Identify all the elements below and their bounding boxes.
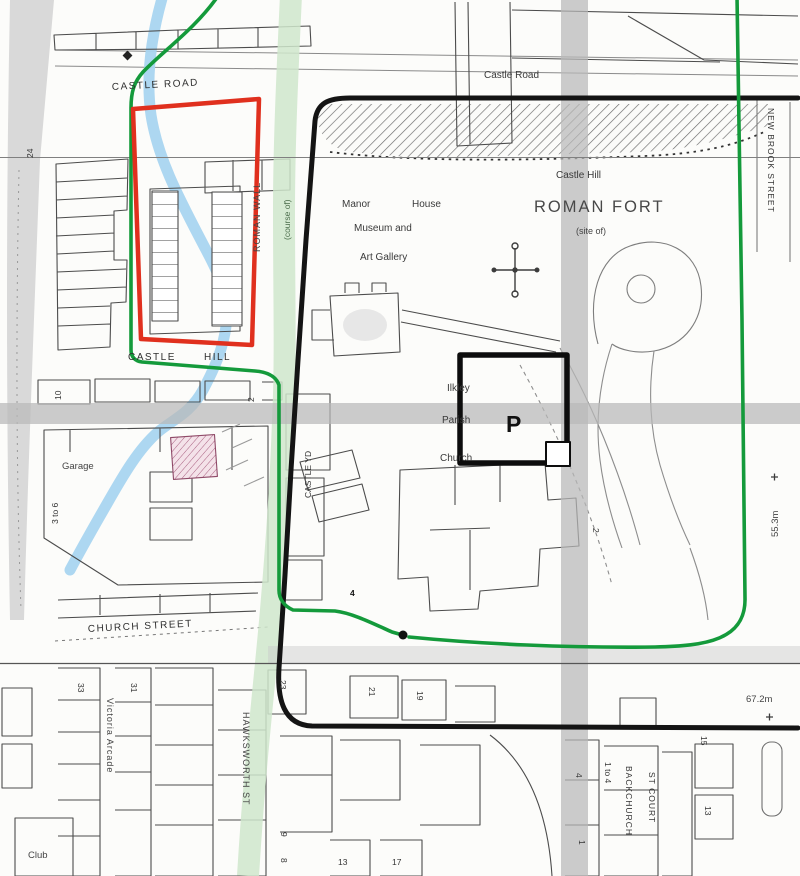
- label-roman-wall: ROMAN WALL: [252, 182, 262, 252]
- label-castle-hill-street-2: HILL: [204, 352, 231, 363]
- pink-hatched-building: [171, 435, 218, 480]
- manor-house-shade: [343, 309, 387, 341]
- number-31: 31: [129, 683, 139, 693]
- label-spot-67: 67.2m: [746, 694, 772, 705]
- label-parish: Parish: [442, 415, 470, 426]
- grid-band-horizontal: [0, 403, 800, 424]
- label-3-to-6: 3 to 6: [50, 502, 60, 524]
- label-ilkley: Ilkley: [447, 383, 470, 394]
- label-new-brook-street: NEW BROOK STREET: [766, 108, 776, 213]
- label-parking-p: P: [506, 411, 521, 437]
- label-church: Church: [440, 453, 472, 464]
- number-13b: 13: [703, 806, 713, 816]
- number-2: 2: [246, 397, 256, 402]
- number-8: 8: [279, 858, 289, 863]
- number-4: 4: [350, 588, 355, 598]
- boundary-point-dot: [399, 631, 408, 640]
- parking-square-notch: [546, 442, 570, 466]
- number-15: 15: [699, 736, 709, 746]
- label-site-of: (site of): [576, 226, 606, 236]
- label-st-court: ST COURT: [647, 772, 657, 823]
- label-1-to-4: 1 to 4: [603, 762, 613, 784]
- number-9: 9: [279, 832, 289, 837]
- label-course-of: (course of): [282, 199, 292, 240]
- label-art-gallery: Art Gallery: [360, 252, 407, 263]
- garage-stack-west: [152, 191, 178, 321]
- number-24: 24: [25, 148, 35, 158]
- number-1: 1: [577, 840, 587, 845]
- map-canvas: CASTLE ROAD Castle Road Castle Hill ROMA…: [0, 0, 800, 876]
- label-victoria-arcade: Victoria Arcade: [105, 698, 115, 773]
- number-33: 33: [76, 683, 86, 693]
- label-castle-hill: Castle Hill: [556, 170, 601, 181]
- label-club: Club: [28, 850, 48, 861]
- label-spot-55: 55.3m: [770, 511, 781, 537]
- label-castle-hill-street-1: CASTLE: [128, 352, 176, 363]
- number-10: 10: [53, 390, 63, 400]
- label-backchurch: BACKCHURCH: [624, 766, 634, 836]
- os-map: CASTLE ROAD Castle Road Castle Hill ROMA…: [0, 0, 800, 876]
- number-13: 13: [338, 857, 348, 867]
- label-castle-yard: CASTLE YD: [303, 451, 313, 498]
- label-garage: Garage: [62, 461, 94, 472]
- south-road-band: [268, 646, 800, 664]
- number-19: 19: [415, 691, 425, 701]
- number-23: 23: [278, 680, 288, 690]
- label-manor: Manor: [342, 199, 371, 210]
- label-roman-fort: ROMAN FORT: [534, 198, 665, 216]
- number-21: 21: [367, 687, 377, 697]
- label-house: House: [412, 199, 441, 210]
- garage-stack-east: [212, 192, 242, 326]
- number-17: 17: [392, 857, 402, 867]
- number-4b: 4: [574, 773, 584, 778]
- label-castle-road: Castle Road: [484, 70, 539, 81]
- label-hawksworth-st: HAWKSWORTH ST: [241, 712, 251, 806]
- label-museum-and: Museum and: [354, 223, 412, 234]
- number-2b: 2: [591, 528, 601, 533]
